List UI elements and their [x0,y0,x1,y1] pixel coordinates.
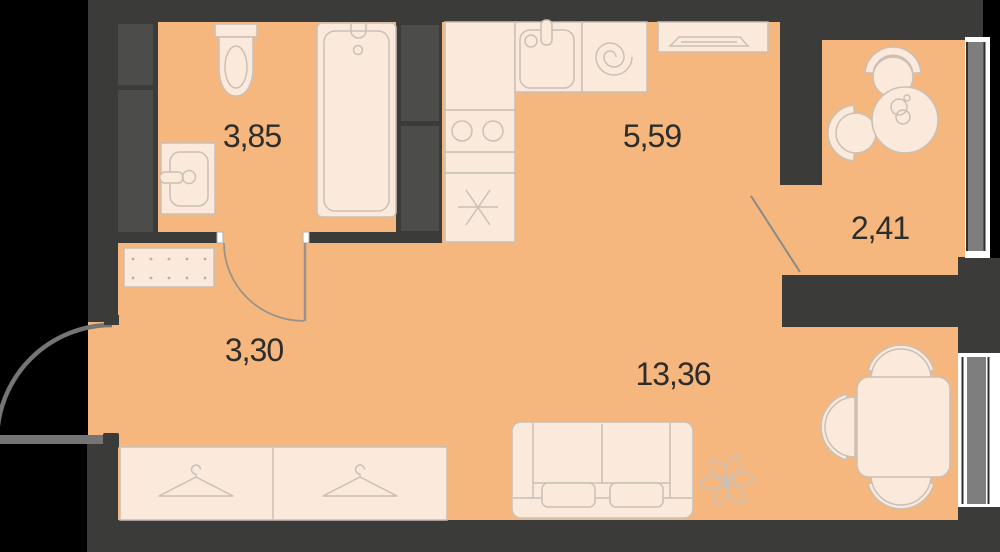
bathtub-icon [317,23,396,217]
window-glass [968,42,984,251]
vent-shaft-icon [401,126,439,231]
vent-shaft-icon [118,90,153,232]
entrance-door-jamb [104,315,119,325]
dining-table-icon [857,377,950,477]
appliance-slot-icon [445,173,515,242]
wall-bathroom-left [158,232,223,243]
wall-balcony-column [780,22,822,185]
washbasin-icon [160,143,215,214]
balcony-table-icon [872,87,938,153]
stove-icon [582,22,647,92]
wall-top [88,0,822,22]
vent-shaft-icon [118,24,153,85]
kitchen-sink-icon [515,20,582,92]
window-glass [967,357,986,504]
wall-bathroom-right [303,232,396,243]
wall-left-upper [88,243,118,322]
window-balcony [965,37,990,258]
window-line [988,357,990,504]
window-living-room [958,353,1000,507]
drying-rack-icon [658,22,768,52]
shoe-cabinet-icon [124,248,214,287]
wall-right-mid [958,257,1000,355]
door-jamb [303,232,309,243]
entrance-door-leaf [0,435,112,444]
window-line [966,42,968,251]
floor-plan-drawing [0,0,1000,552]
wall-right-bottom [958,505,1000,552]
floor-plan-canvas: 3,85 5,59 2,41 3,30 13,36 [0,0,1000,552]
door-jamb [217,232,223,243]
window-line [984,42,986,251]
hob-two-burner-icon [445,110,515,152]
outside-top-right [983,0,1000,40]
entrance-door-hinge [103,433,119,448]
toilet-icon [215,24,257,96]
wardrobe-icon [120,447,447,520]
vent-shaft-icon [401,25,439,121]
sofa-icon [512,422,693,518]
wall-bottom [87,520,1000,552]
window-line [962,357,964,504]
outside-right-strip [990,37,1000,258]
